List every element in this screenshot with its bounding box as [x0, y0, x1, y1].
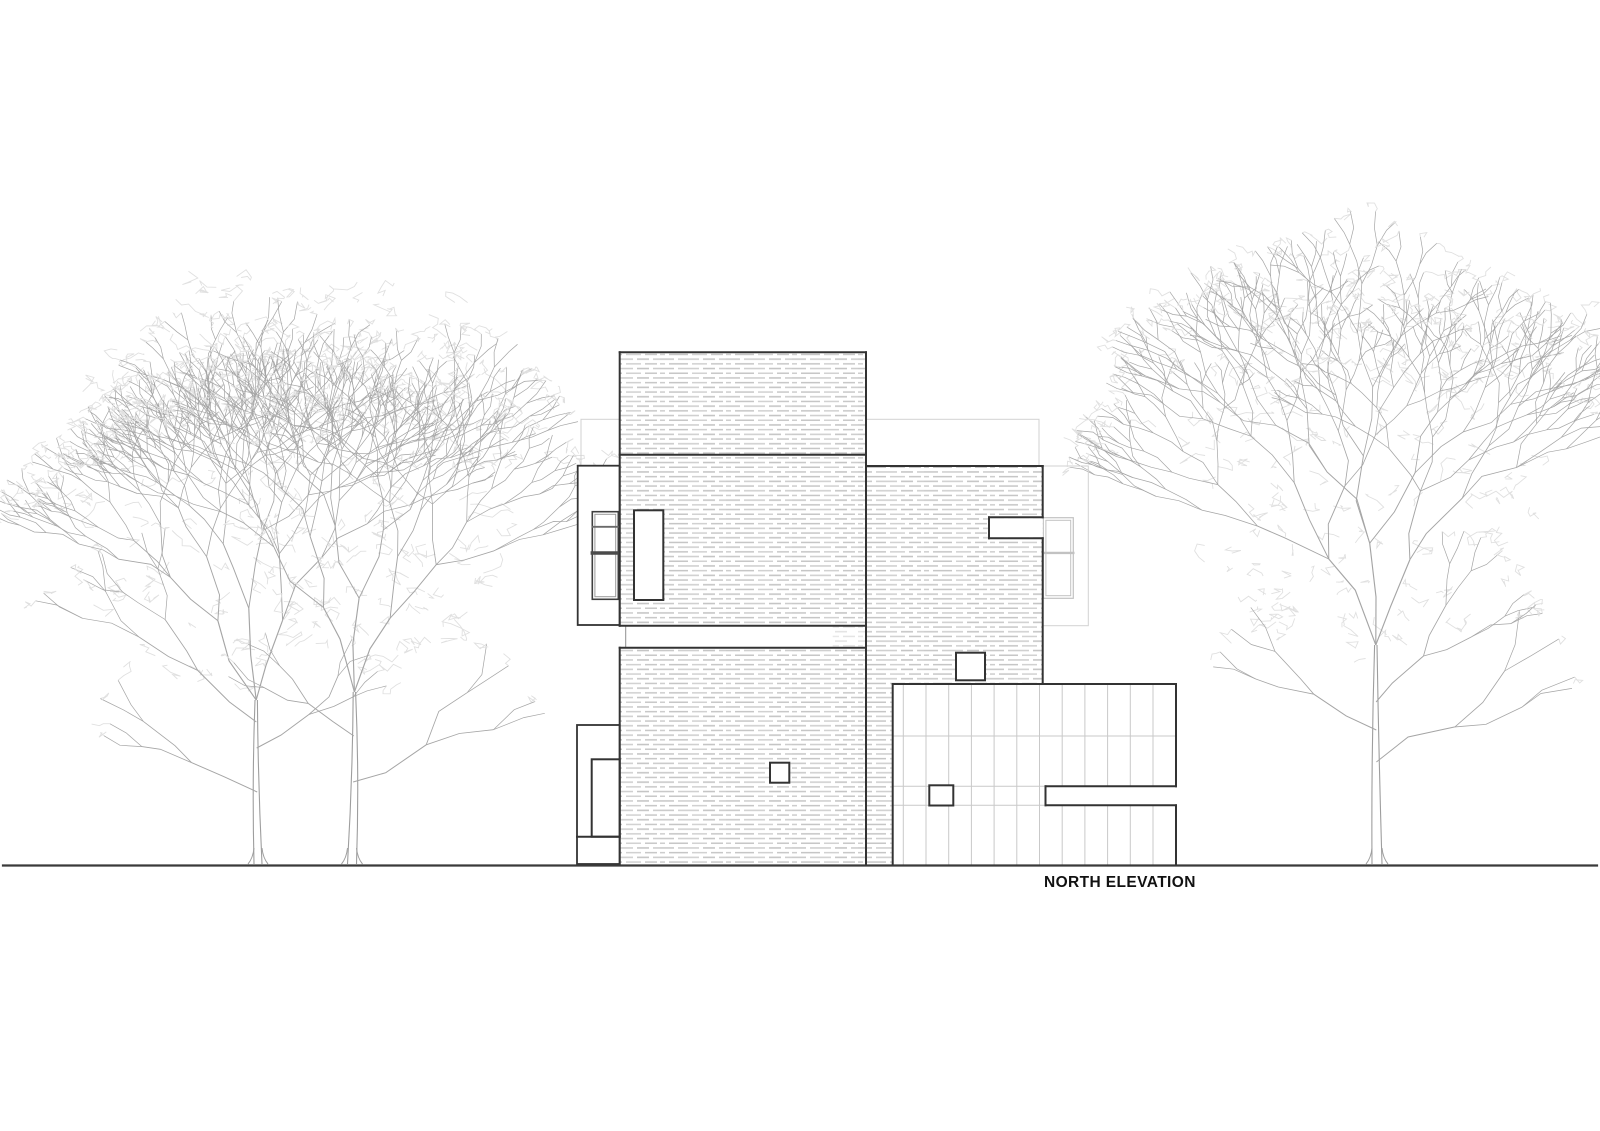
- small-window-grid-block: [929, 785, 953, 805]
- elevation-sheet: NORTH ELEVATION: [0, 0, 1600, 1131]
- left-tree-a: [0, 270, 498, 864]
- building-layer: [577, 352, 1176, 864]
- drawing-caption: NORTH ELEVATION: [1044, 874, 1196, 892]
- right-brick-wing: [866, 466, 1043, 684]
- bg-right-extension-outline: [1043, 466, 1089, 626]
- elevation-drawing: [0, 0, 1600, 1131]
- recessed-brick-patch: [833, 627, 866, 648]
- slatted-garage-volume: [893, 684, 1176, 864]
- brick-pier-strip: [866, 684, 893, 864]
- grid-slot: [1046, 787, 1176, 805]
- square-window-right-wing: [956, 653, 985, 681]
- lower-brick-volume: [620, 648, 866, 864]
- right-wing-notch: [989, 518, 1042, 537]
- left-wing-window: [592, 512, 618, 600]
- entry-door: [634, 510, 663, 600]
- upper-brick-volume: [620, 352, 866, 454]
- bg-right-window-outline: [1043, 518, 1073, 599]
- left-wing-door: [592, 759, 620, 836]
- small-window-lower-volume: [770, 763, 789, 783]
